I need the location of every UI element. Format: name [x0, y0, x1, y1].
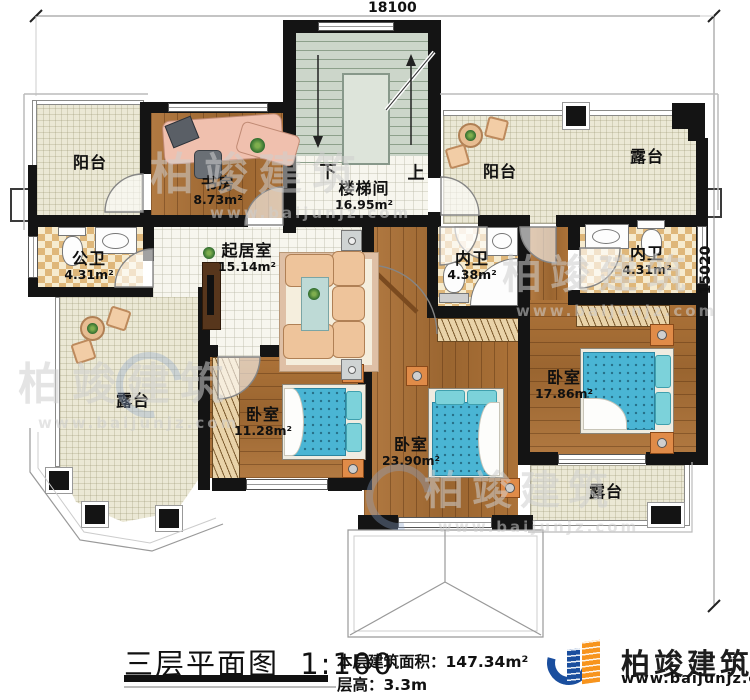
- wall: [28, 165, 37, 217]
- flowers: [308, 288, 320, 300]
- stair-up-label: 上: [408, 159, 425, 184]
- sink-basin: [492, 233, 512, 249]
- room-label-terrace-br: 露台: [589, 483, 623, 501]
- stair-opening: [342, 73, 390, 165]
- wall: [427, 215, 438, 315]
- wall: [210, 345, 218, 357]
- room-label-ensuite-b: 内卫 4.31m²: [622, 245, 671, 277]
- stair-treads-top: [296, 33, 428, 73]
- window: [28, 236, 38, 278]
- wall: [518, 300, 530, 465]
- plant: [203, 247, 215, 259]
- room-label-living: 起居室 15.14m²: [218, 242, 276, 274]
- sink-basin: [102, 233, 129, 249]
- wall: [140, 102, 151, 174]
- dimension-height: 15020: [698, 240, 714, 300]
- toilet-tank: [439, 293, 469, 303]
- sofa-seat: [332, 251, 365, 286]
- room-label-bedroom-bottom: 卧室 23.90m²: [382, 436, 440, 468]
- room-label-stairwell: 楼梯间 16.95m²: [335, 180, 393, 212]
- room-label-bedroom-right: 卧室 17.86m²: [535, 369, 593, 401]
- wall: [568, 215, 580, 250]
- wall-corner-block: [672, 103, 705, 129]
- nightstand: [406, 366, 428, 386]
- floor-plan-canvas: 书房 8.73m² 楼梯间 16.95m² 阳台 阳台 露台 公卫 4.31m²…: [0, 0, 750, 700]
- wall: [568, 293, 706, 305]
- floor-hall: [530, 227, 568, 303]
- room-label-ensuite-a: 内卫 4.38m²: [447, 250, 496, 282]
- floor-terrace-left: [48, 297, 212, 532]
- balcony-rail: [32, 100, 37, 167]
- wall: [328, 478, 362, 491]
- stair-treads-left-flight: [296, 73, 342, 165]
- company-website: www.baijunjz.com: [621, 671, 750, 687]
- plant: [465, 130, 476, 141]
- wall: [143, 215, 154, 261]
- title-underline: [124, 675, 328, 682]
- window: [246, 479, 328, 490]
- plant: [250, 138, 265, 153]
- window: [398, 517, 492, 528]
- column: [563, 103, 589, 129]
- room-label-balcony-tl: 阳台: [73, 154, 107, 172]
- room-label-terrace-tr: 露台: [630, 148, 664, 166]
- pillow: [346, 423, 362, 452]
- wall: [696, 138, 708, 465]
- column: [46, 468, 72, 493]
- side-table: [341, 230, 362, 251]
- toilet-tank: [637, 220, 665, 229]
- wall: [478, 215, 518, 227]
- nightstand: [650, 324, 674, 346]
- window: [168, 103, 268, 112]
- wall: [358, 515, 398, 530]
- wall: [28, 287, 153, 297]
- title-underline-thin: [124, 686, 336, 688]
- window: [558, 454, 646, 464]
- pillow: [435, 390, 465, 405]
- wall: [212, 478, 246, 491]
- nightstand: [650, 432, 674, 454]
- logo-building-orange: [582, 640, 600, 685]
- pillow: [346, 391, 362, 420]
- room-label-terrace-left: 露台: [116, 392, 150, 410]
- sofa-seat: [332, 286, 365, 321]
- bed-blanket: [478, 402, 500, 476]
- wall: [427, 306, 530, 318]
- company-logo-icon: [545, 633, 615, 695]
- room-label-public-bath: 公卫 4.31m²: [64, 250, 113, 282]
- coffee-table: [301, 277, 329, 331]
- side-table: [341, 359, 362, 380]
- wall: [428, 20, 441, 178]
- nightstand: [500, 478, 520, 498]
- wall: [518, 215, 530, 307]
- room-label-balcony-tr: 阳台: [483, 163, 517, 181]
- wall: [283, 20, 296, 233]
- plant: [87, 323, 98, 334]
- stair-treads-right-flight: [390, 73, 428, 158]
- terrace-rail: [684, 462, 690, 526]
- toilet-tank: [58, 227, 86, 236]
- wall-corner-block: [688, 129, 705, 141]
- wall: [518, 452, 558, 465]
- room-label-study: 书房 8.73m²: [193, 175, 242, 207]
- terrace-rail: [55, 297, 60, 467]
- wall: [492, 515, 533, 530]
- nightstand: [342, 459, 364, 478]
- column: [82, 502, 108, 527]
- column: [156, 506, 182, 531]
- logo-building-blue: [567, 648, 580, 681]
- sofa-seat: [332, 321, 365, 358]
- sink-basin: [592, 229, 620, 244]
- balcony-rail: [32, 100, 144, 105]
- window: [318, 22, 394, 31]
- floor-area-stat: 本层建筑面积：147.34m²: [337, 650, 528, 672]
- pillow: [655, 392, 671, 425]
- pillow: [655, 355, 671, 388]
- stair-down-label: 下: [320, 158, 337, 183]
- column: [648, 503, 684, 527]
- room-label-bedroom-left: 卧室 11.28m²: [234, 406, 292, 438]
- wall: [28, 215, 248, 227]
- floor-height-stat: 层高：3.3m: [337, 673, 427, 695]
- dimension-width: 18100: [368, 0, 417, 16]
- closet-ensuite-a: [437, 318, 522, 342]
